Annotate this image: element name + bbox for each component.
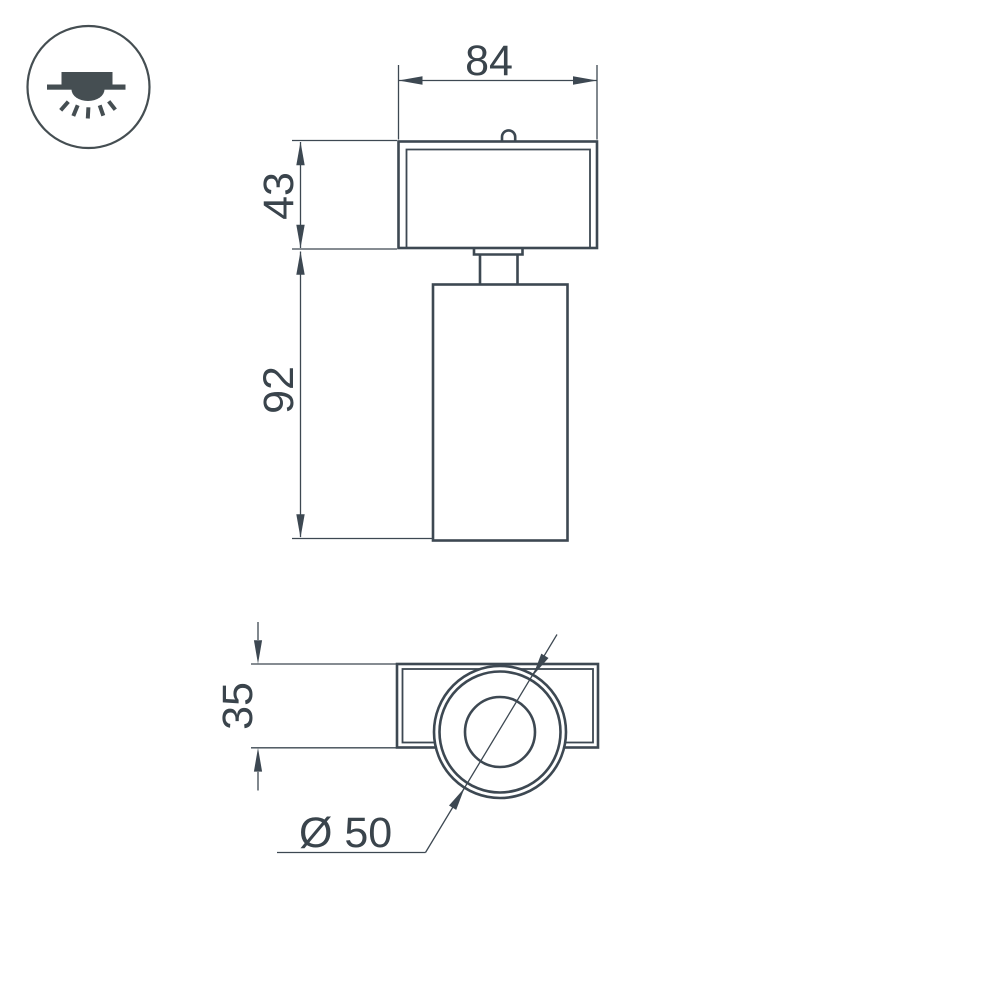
light-rays [61, 101, 116, 118]
arrowhead-down [296, 514, 304, 538]
front-view [399, 130, 598, 540]
technical-drawing: 84 43 92 [0, 0, 1000, 1000]
recessed-downlight-icon [28, 26, 150, 148]
arrowhead-lower [449, 788, 465, 810]
lamp-cylinder [433, 285, 568, 541]
dimension-width: 84 [399, 37, 598, 140]
arrowhead-up [296, 142, 304, 166]
light-dome-shape [72, 90, 105, 102]
dim-side-height-label: 35 [214, 682, 262, 730]
mounting-box [399, 142, 598, 249]
arrowhead-down [254, 640, 262, 664]
lamp-face-outer-circle [434, 666, 566, 798]
lamp-housing-shape [62, 72, 113, 86]
dimension-side-height: 35 [214, 622, 397, 791]
bottom-view [397, 664, 598, 798]
neck [480, 255, 518, 284]
dimension-body-height: 92 [255, 251, 434, 538]
arrowhead-down [296, 225, 304, 249]
dim-diameter-label: Ø 50 [299, 809, 392, 857]
arrowhead-up [296, 251, 304, 274]
neck-flange [474, 249, 523, 255]
dim-body-height-label: 92 [255, 366, 303, 414]
ceiling-line-shape [47, 85, 126, 90]
dimension-box-height: 43 [255, 141, 397, 250]
dimension-drawing-page: 84 43 92 [0, 0, 1000, 1000]
arrowhead-up [254, 748, 262, 772]
arrowhead-left [399, 76, 423, 85]
dim-width-label: 84 [465, 37, 513, 85]
dim-box-height-label: 43 [255, 172, 303, 220]
arrowhead-right [573, 76, 597, 85]
